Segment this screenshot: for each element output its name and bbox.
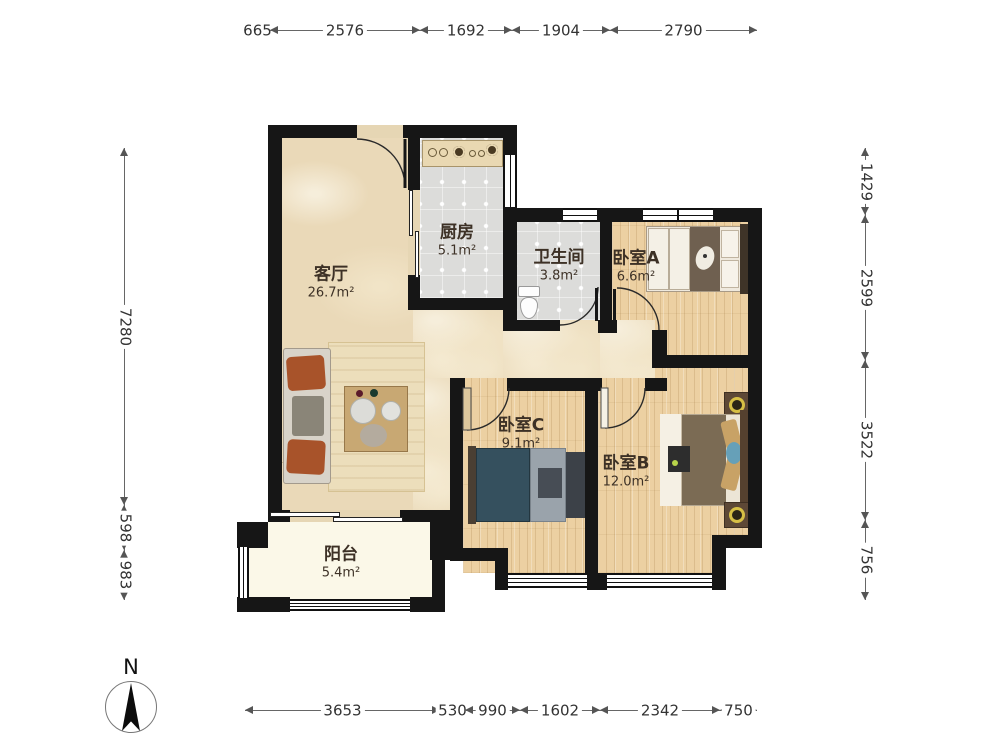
bed-c-headboard — [468, 446, 476, 524]
kitchen-sliding-door — [409, 190, 413, 236]
wall-balcony-corner — [410, 597, 445, 612]
wall-pillar-doors — [598, 320, 617, 333]
wall-top — [403, 125, 517, 138]
dim-bottom-6: 750 — [720, 704, 757, 718]
dim-bottom-1: 3653 — [245, 704, 440, 718]
wall-kitchen-left — [408, 138, 420, 190]
dim-bottom-2: 530 — [440, 704, 465, 718]
wall-c-top — [450, 378, 465, 391]
wall-bathroom-bottom — [503, 320, 560, 331]
bed-b-headboard — [740, 410, 748, 508]
room-label-balcony: 阳台5.4m² — [322, 544, 361, 583]
bed-b-laptop — [668, 446, 690, 472]
stove-burner — [486, 144, 498, 156]
room-label-kitchen: 厨房5.1m² — [438, 222, 477, 261]
bed-a-pillow — [721, 260, 739, 288]
sink-basin — [469, 150, 476, 157]
desk-c — [566, 452, 585, 518]
dim-top-5: 2790 — [610, 24, 757, 38]
dim-bottom-3: 990 — [465, 704, 520, 718]
dim-right-2: 2599 — [859, 215, 873, 360]
wall-cb-divider — [585, 378, 598, 573]
dim-right-3: 3522 — [859, 360, 873, 520]
wall-ab-divider — [655, 355, 762, 368]
bed-a-headboard — [740, 224, 748, 294]
bedroom-a-window-divider — [677, 208, 679, 222]
dim-right-1: 1429 — [859, 148, 873, 215]
wall-balcony-corner — [237, 597, 290, 612]
dim-bottom-4: 1602 — [520, 704, 600, 718]
balcony-window-bottom — [290, 599, 410, 611]
wall-kitchen-left — [408, 275, 420, 300]
dim-top-1: 665 — [245, 24, 270, 38]
wall-b-top — [645, 378, 667, 391]
plate — [381, 401, 401, 421]
bottle — [356, 390, 363, 397]
hallway-floor — [413, 310, 503, 378]
room-label-bedroom-b: 卧室B12.0m² — [603, 453, 650, 492]
toilet-tank — [518, 286, 540, 297]
balcony-window-left — [238, 547, 249, 598]
table-decor — [360, 424, 387, 447]
dim-top-4: 1904 — [512, 24, 610, 38]
wall-step-top — [503, 208, 563, 222]
wall-balcony-right — [432, 510, 445, 600]
bedroom-b-window — [607, 573, 712, 588]
floor-plan-canvas: 客厅26.7m² 厨房5.1m² 卫生间3.8m² 卧室A6.6m² 卧室C9.… — [0, 0, 1000, 750]
compass-north-label: N — [117, 655, 145, 679]
kitchen-sliding-door — [415, 231, 419, 278]
dim-top-2: 2576 — [270, 24, 420, 38]
dim-top-3: 1692 — [420, 24, 512, 38]
room-label-bedroom-a: 卧室A6.6m² — [612, 248, 659, 287]
sink-basin — [428, 148, 437, 157]
wall-kitchen-right — [503, 207, 517, 330]
dim-left-2: 598 — [118, 505, 132, 550]
bed-a-decor-dot — [703, 254, 707, 258]
plate — [350, 398, 376, 424]
dim-right-4: 756 — [859, 520, 873, 600]
stove-burner — [453, 146, 465, 158]
dim-bottom-5: 2342 — [600, 704, 720, 718]
sink-basin — [439, 148, 448, 157]
wall-balcony-left-block — [237, 522, 268, 548]
bed-a-pillow — [721, 230, 739, 258]
sofa-pillow — [286, 439, 326, 475]
dim-left-3: 983 — [118, 550, 132, 600]
sofa-pillow — [286, 355, 326, 392]
wall-step-bottom-right-v — [712, 535, 726, 590]
wall-top — [268, 125, 357, 138]
balcony-sliding-door — [333, 517, 403, 522]
wall-bathroom-right — [600, 208, 612, 320]
wall-left — [268, 125, 282, 522]
wall-pillar-cb — [587, 573, 607, 590]
wall-kitchen-bottom — [408, 298, 517, 310]
balcony-sliding-door — [270, 512, 340, 517]
bed-c-blanket — [476, 448, 530, 522]
sofa-throw — [292, 396, 324, 436]
wall-junction-a — [652, 330, 667, 368]
bed-a-cabinet — [669, 228, 690, 290]
entrance-threshold — [357, 125, 405, 138]
bed-b-laptop-dot — [672, 460, 678, 466]
room-label-bedroom-c: 卧室C9.1m² — [498, 415, 544, 454]
bathroom-window — [563, 208, 597, 222]
wall-kitchen-corner — [503, 125, 517, 155]
room-label-bathroom: 卫生间3.8m² — [534, 247, 585, 286]
dim-left-1: 7280 — [118, 148, 132, 505]
wall-c-bottom-block — [495, 560, 508, 590]
bedroom-b-floor-lower — [598, 535, 712, 573]
sink-basin — [478, 150, 485, 157]
bed-c-laptop — [538, 468, 562, 498]
lamp — [729, 507, 745, 523]
room-label-living: 客厅26.7m² — [308, 264, 355, 303]
bedroom-c-window — [508, 573, 587, 588]
kitchen-window — [503, 155, 517, 207]
bottle — [370, 389, 378, 397]
wall-right — [748, 208, 762, 548]
